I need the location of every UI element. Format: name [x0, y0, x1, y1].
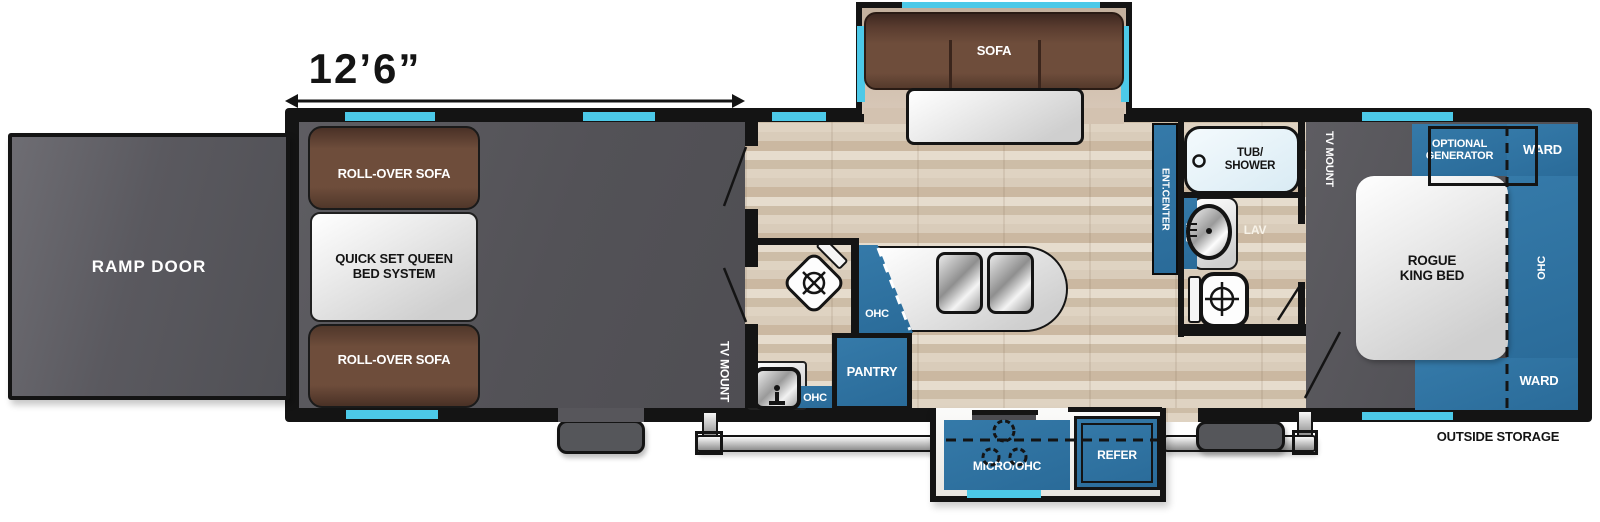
garage-tv-mount-label: TV MOUNT	[710, 332, 738, 412]
sofa-label: SOFA	[977, 44, 1012, 59]
awning-end-cap-right	[1292, 430, 1318, 455]
bedroom-ohc-label: OHC	[1536, 256, 1548, 280]
rogue-king-bed: ROGUE KING BED	[1356, 176, 1508, 360]
entry-door-opening	[1166, 408, 1198, 422]
roll-over-sofa-top-label: ROLL-OVER SOFA	[338, 167, 451, 182]
micro-slide-lip	[972, 410, 1038, 415]
window-garage-top-1	[345, 112, 435, 121]
bath-right-wall-lower	[1298, 282, 1305, 336]
pantry-cabinet: PANTRY	[832, 333, 912, 411]
partition-wall-seg1	[745, 122, 758, 146]
ramp-door: RAMP DOOR	[8, 133, 290, 400]
window-bedroom-top	[1362, 112, 1453, 121]
quick-set-queen-bed: QUICK SET QUEEN BED SYSTEM	[310, 212, 478, 322]
partition-wall-seg3	[745, 324, 758, 408]
wardrobe-bottom: WARD	[1415, 358, 1578, 410]
outside-storage-label: OUTSIDE STORAGE	[1432, 428, 1564, 446]
refer-cabinet: REFER	[1074, 416, 1160, 490]
awning-bar-left	[696, 435, 944, 452]
lav-label: LAV	[1238, 222, 1272, 238]
generator-compartment-outline	[1428, 126, 1538, 186]
sofa-table	[906, 88, 1084, 145]
ent-center-cabinet: ENT.CENTER	[1152, 123, 1178, 275]
tub-partition-wall	[1182, 192, 1302, 198]
micro-ohc-label: MICRO/OHC	[957, 460, 1057, 473]
half-bath-right-wall	[851, 238, 859, 333]
tub-shower: TUB/ SHOWER	[1184, 126, 1300, 194]
queen-bed-label: QUICK SET QUEEN BED SYSTEM	[335, 252, 453, 281]
sofa-cushion-divider-left	[949, 40, 952, 88]
roll-over-sofa-bottom: ROLL-OVER SOFA	[308, 324, 480, 408]
micro-ohc-cabinet: MICRO/OHC	[944, 420, 1070, 490]
sofa: SOFA	[864, 12, 1124, 90]
wardrobe-bottom-label: WARD	[1507, 374, 1571, 389]
sofa-cushion-divider-right	[1038, 40, 1041, 88]
half-bath-ohc-label: OHC	[798, 390, 832, 406]
main-entry-step	[1196, 421, 1285, 452]
ent-center-label: ENT.CENTER	[1159, 168, 1170, 231]
island-ohc-label: OHC	[859, 306, 895, 322]
slideout-window-bottom-strip	[967, 490, 1041, 498]
lav-sink	[1186, 204, 1232, 260]
window-garage-top-2	[583, 112, 655, 121]
refer-label: REFER	[1085, 449, 1149, 462]
pantry-label: PANTRY	[847, 365, 898, 380]
window-garage-bottom	[346, 410, 438, 419]
floorplan-canvas: 12’6” RAMP DOOR ROLL-OVER SOFA QUICK SET…	[0, 0, 1600, 522]
half-bath-sink	[753, 367, 801, 410]
half-bath-top-wall	[745, 238, 859, 245]
awning-end-cap-left	[695, 431, 723, 455]
island-sink-left	[936, 252, 983, 314]
garage-entry-step	[557, 420, 645, 454]
garage-door-opening	[558, 408, 644, 422]
slideout-window-top-strip	[902, 2, 1100, 8]
roll-over-sofa-bottom-label: ROLL-OVER SOFA	[338, 353, 451, 368]
roll-over-sofa-top: ROLL-OVER SOFA	[308, 126, 480, 210]
dimension-arrowhead-right	[732, 94, 745, 108]
island-sink-right	[987, 252, 1034, 314]
window-bedroom-bottom	[1362, 412, 1453, 420]
bath-right-wall-upper	[1298, 122, 1305, 224]
dimension-arrowhead-left	[285, 94, 298, 108]
ramp-door-label: RAMP DOOR	[92, 257, 206, 276]
bath-bottom-wall	[1178, 324, 1306, 336]
rogue-king-bed-label: ROGUE KING BED	[1400, 253, 1464, 283]
window-kitchen-top	[772, 112, 826, 121]
garage-dimension-label: 12’6”	[280, 44, 450, 94]
bedroom-ohc-cabinet: OHC	[1507, 176, 1578, 360]
refer-slide-lip	[1068, 407, 1162, 412]
tub-shower-label: TUB/ SHOWER	[1225, 147, 1276, 173]
toilet-bowl	[1199, 272, 1249, 328]
bedroom-tv-mount-label: TV MOUNT	[1316, 126, 1342, 192]
